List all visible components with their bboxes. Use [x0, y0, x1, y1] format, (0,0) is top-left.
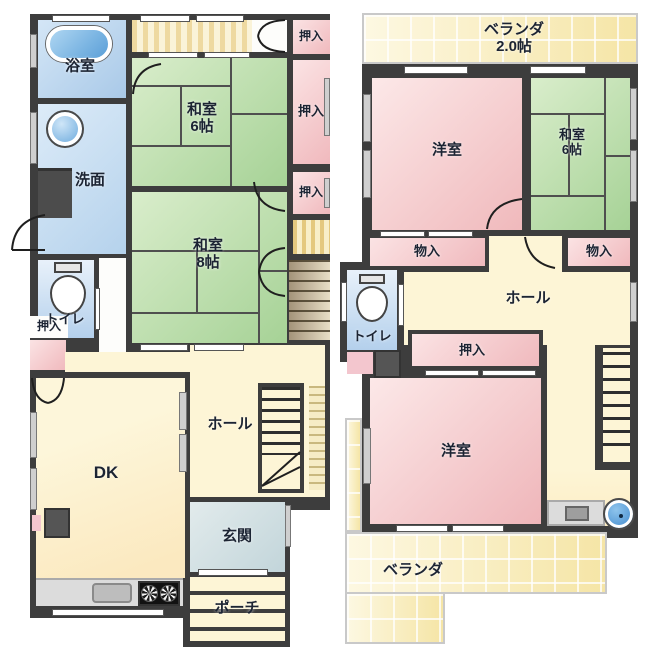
kitchen-sink-icon [92, 583, 132, 603]
label-washroom-1f: 洗面 [75, 171, 105, 188]
cabinet-dk-1f [44, 508, 70, 538]
window [196, 15, 244, 22]
window [324, 78, 330, 136]
window [630, 150, 637, 202]
toilet-bowl-icon [356, 286, 388, 322]
label-genkan-1f: 玄関 [222, 527, 252, 544]
window [52, 15, 110, 22]
stair-flight-strip-1f [289, 260, 330, 340]
corridor-door-area-1f [252, 20, 287, 52]
door-mark [285, 505, 291, 547]
window [140, 15, 190, 22]
sliding-door-mark [380, 231, 425, 237]
sliding-door-mark [428, 231, 473, 237]
hall-gap-2f [489, 236, 562, 272]
window [324, 178, 330, 208]
label-veranda-bottom-2f: ベランダ [383, 561, 443, 578]
label-dk-1f: DK [94, 463, 119, 483]
label-washitsu8-1f: 和室 8帖 [193, 237, 223, 272]
label-hall-1f: ホール [207, 415, 252, 432]
label-veranda-top-2f: ベランダ 2.0帖 [484, 21, 544, 56]
window [30, 412, 37, 458]
window [204, 52, 250, 58]
window [341, 282, 347, 322]
label-oshiire-right2-1f: 押入 [299, 186, 323, 200]
toilet-icon [359, 274, 385, 284]
window [194, 344, 244, 351]
cabinet-2f [374, 350, 401, 378]
washbasin-round-icon [603, 498, 635, 530]
window [52, 609, 164, 616]
toilet-bowl-icon [50, 275, 86, 315]
engawa-corridor-1f [132, 20, 252, 52]
label-yoshitsu-top-2f: 洋室 [432, 141, 462, 158]
window [30, 468, 37, 510]
label-oshiire-corner-1f: 押入 [299, 30, 323, 44]
window [179, 434, 187, 472]
label-porch-1f: ポーチ [214, 599, 259, 616]
window [363, 150, 371, 198]
sliding-door-mark [482, 370, 536, 376]
kitchen-counter-1f [36, 578, 183, 606]
window [363, 94, 371, 142]
window [179, 392, 187, 430]
closet-pink-2f [347, 352, 373, 374]
label-oshiire-right1-1f: 押入 [298, 105, 324, 120]
washbasin-icon [46, 110, 84, 148]
window [140, 344, 188, 351]
window [630, 88, 637, 140]
label-washitsu6-2f: 和室 6帖 [559, 128, 585, 158]
label-monoire-right-2f: 物入 [586, 245, 612, 260]
closet-pink-1f [30, 340, 66, 370]
entry-door-mark [198, 569, 268, 576]
label-yoshitsu-bottom-2f: 洋室 [441, 442, 471, 459]
veranda-left-strip-2f [345, 418, 362, 532]
floor-plan: 浴室 洗面 トイレ 押入 和室 6帖 和室 8帖 押入 押入 押入 DK ホール… [0, 0, 658, 663]
window [452, 525, 504, 532]
counter-2f [547, 500, 605, 526]
sliding-door-mark [425, 370, 479, 376]
striped-strip-1f [293, 220, 330, 254]
toilet-icon [54, 262, 82, 273]
window [148, 52, 198, 58]
staircase-2f [599, 348, 630, 462]
label-hall-2f: ホール [505, 289, 550, 306]
stair-rail-strip-1f [309, 386, 325, 490]
veranda-bottom-l-2f [345, 592, 445, 644]
label-oshiire-toilet-1f: 押入 [37, 320, 61, 334]
label-oshiire-2f: 押入 [459, 344, 485, 359]
window [396, 525, 448, 532]
washing-machine-icon [38, 168, 72, 218]
sink-2f-icon [565, 506, 589, 521]
window [530, 66, 586, 74]
closet-pink-dk-1f [32, 515, 41, 531]
label-toilet-2f: トイレ [352, 330, 391, 345]
stove-icon [138, 581, 180, 606]
window [30, 112, 37, 164]
window [630, 282, 637, 322]
door-mark [95, 288, 100, 330]
door-mark [398, 284, 404, 326]
window [30, 34, 37, 68]
window [363, 428, 371, 484]
staircase-1f [258, 383, 304, 493]
label-monoire-left-2f: 物入 [414, 245, 440, 260]
label-washitsu6-1f: 和室 6帖 [187, 101, 217, 136]
hall-side-2f [547, 345, 595, 470]
window [404, 66, 468, 74]
label-bathroom-1f: 浴室 [65, 57, 95, 74]
